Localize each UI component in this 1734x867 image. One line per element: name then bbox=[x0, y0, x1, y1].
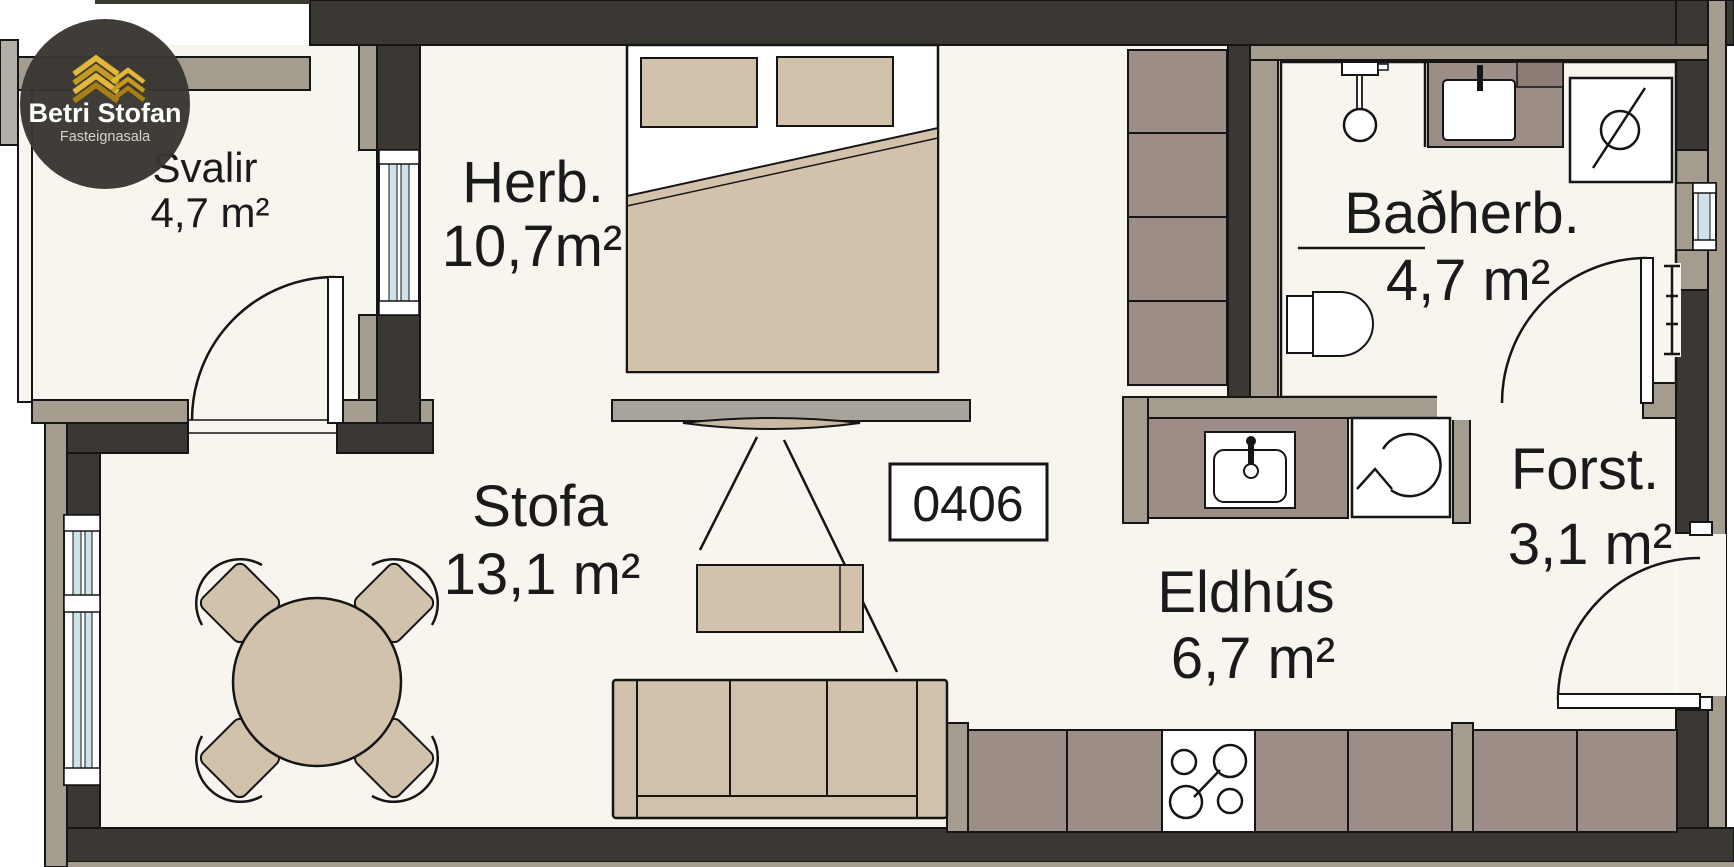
logo-subtitle: Fasteignasala bbox=[60, 129, 151, 145]
sofa bbox=[613, 680, 947, 818]
bed-pillow-left bbox=[641, 58, 757, 127]
logo-name: Betri Stofan bbox=[28, 98, 181, 128]
wall-left-lower bbox=[67, 785, 100, 828]
sofa-kitchen-stub bbox=[947, 723, 968, 832]
coffee-table bbox=[697, 565, 863, 632]
balcony-wall-bottom-left-inner bbox=[67, 423, 188, 453]
wall-bathroom-top-lining bbox=[1250, 45, 1708, 60]
unit-number-box: 0406 bbox=[890, 464, 1047, 540]
floorplan-canvas: 0406 Svalir 4,7 m² Herb. 10,7m² Baðherb.… bbox=[0, 0, 1734, 867]
toilet bbox=[1287, 292, 1373, 356]
balcony-door-opening bbox=[189, 396, 336, 456]
label-badherb-area: 4,7 m² bbox=[1386, 248, 1550, 313]
wall-bedroom-balcony-lining-top bbox=[359, 45, 377, 150]
burner-icon bbox=[1170, 786, 1202, 818]
wall-top-thin-edge bbox=[95, 0, 310, 4]
wall-right-outer bbox=[1708, 0, 1726, 867]
entry-door-jamb-top bbox=[1690, 522, 1712, 535]
faucet-icon bbox=[1477, 65, 1483, 91]
wall-hall-bathroom bbox=[1228, 45, 1250, 402]
fridge bbox=[1352, 418, 1450, 517]
stove bbox=[1162, 730, 1255, 832]
vanity-basin bbox=[1428, 62, 1563, 147]
label-herb-area: 10,7m² bbox=[442, 214, 623, 279]
label-stofa: Stofa bbox=[472, 474, 608, 539]
window-left-wall bbox=[64, 515, 100, 785]
kitchen-sink bbox=[1205, 432, 1295, 508]
agency-logo: Betri Stofan Fasteignasala bbox=[20, 19, 190, 189]
wall-bedroom-balcony-lining-bottom bbox=[359, 315, 377, 400]
wall-right-window-recess-top bbox=[1676, 150, 1708, 183]
radiator bbox=[1663, 263, 1681, 357]
label-eldhus: Eldhús bbox=[1157, 560, 1334, 625]
kitchen-halfwall-left bbox=[1123, 397, 1148, 523]
window-bedroom-balcony bbox=[379, 150, 419, 315]
balcony-outer-ledge bbox=[0, 40, 18, 145]
label-eldhus-area: 6,7 m² bbox=[1171, 626, 1335, 691]
label-herb: Herb. bbox=[462, 150, 604, 215]
label-badherb: Baðherb. bbox=[1344, 181, 1579, 246]
label-forst-area: 3,1 m² bbox=[1508, 512, 1672, 577]
label-stofa-area: 13,1 m² bbox=[444, 542, 641, 607]
burner-icon bbox=[1218, 789, 1242, 813]
kitchen-halfwall-top bbox=[1123, 397, 1470, 418]
bedroom-furniture bbox=[627, 45, 1227, 385]
bathroom-door-opening bbox=[1437, 388, 1642, 420]
wall-top bbox=[310, 0, 1734, 45]
wall-bottom bbox=[64, 828, 1734, 862]
label-forst: Forst. bbox=[1511, 437, 1659, 502]
floorplan-drawing: 0406 Svalir 4,7 m² Herb. 10,7m² Baðherb.… bbox=[0, 0, 1734, 867]
window-right-wall bbox=[1676, 183, 1716, 250]
dining-table bbox=[233, 598, 401, 766]
bed-pillow-right bbox=[777, 57, 893, 126]
wall-hall-bathroom-lining bbox=[1250, 45, 1278, 402]
counter-divider-stub bbox=[1452, 723, 1473, 832]
burner-icon bbox=[1172, 750, 1196, 774]
balcony-wall-bottom-right-inner bbox=[337, 423, 433, 453]
washing-machine bbox=[1570, 78, 1672, 182]
kitchen-bottom-counter bbox=[968, 730, 1677, 832]
balcony-wall-bottom-left-outer bbox=[32, 400, 188, 423]
label-svalir-area: 4,7 m² bbox=[150, 189, 269, 236]
wall-bottom-outer bbox=[64, 862, 1734, 867]
unit-number: 0406 bbox=[912, 476, 1023, 532]
